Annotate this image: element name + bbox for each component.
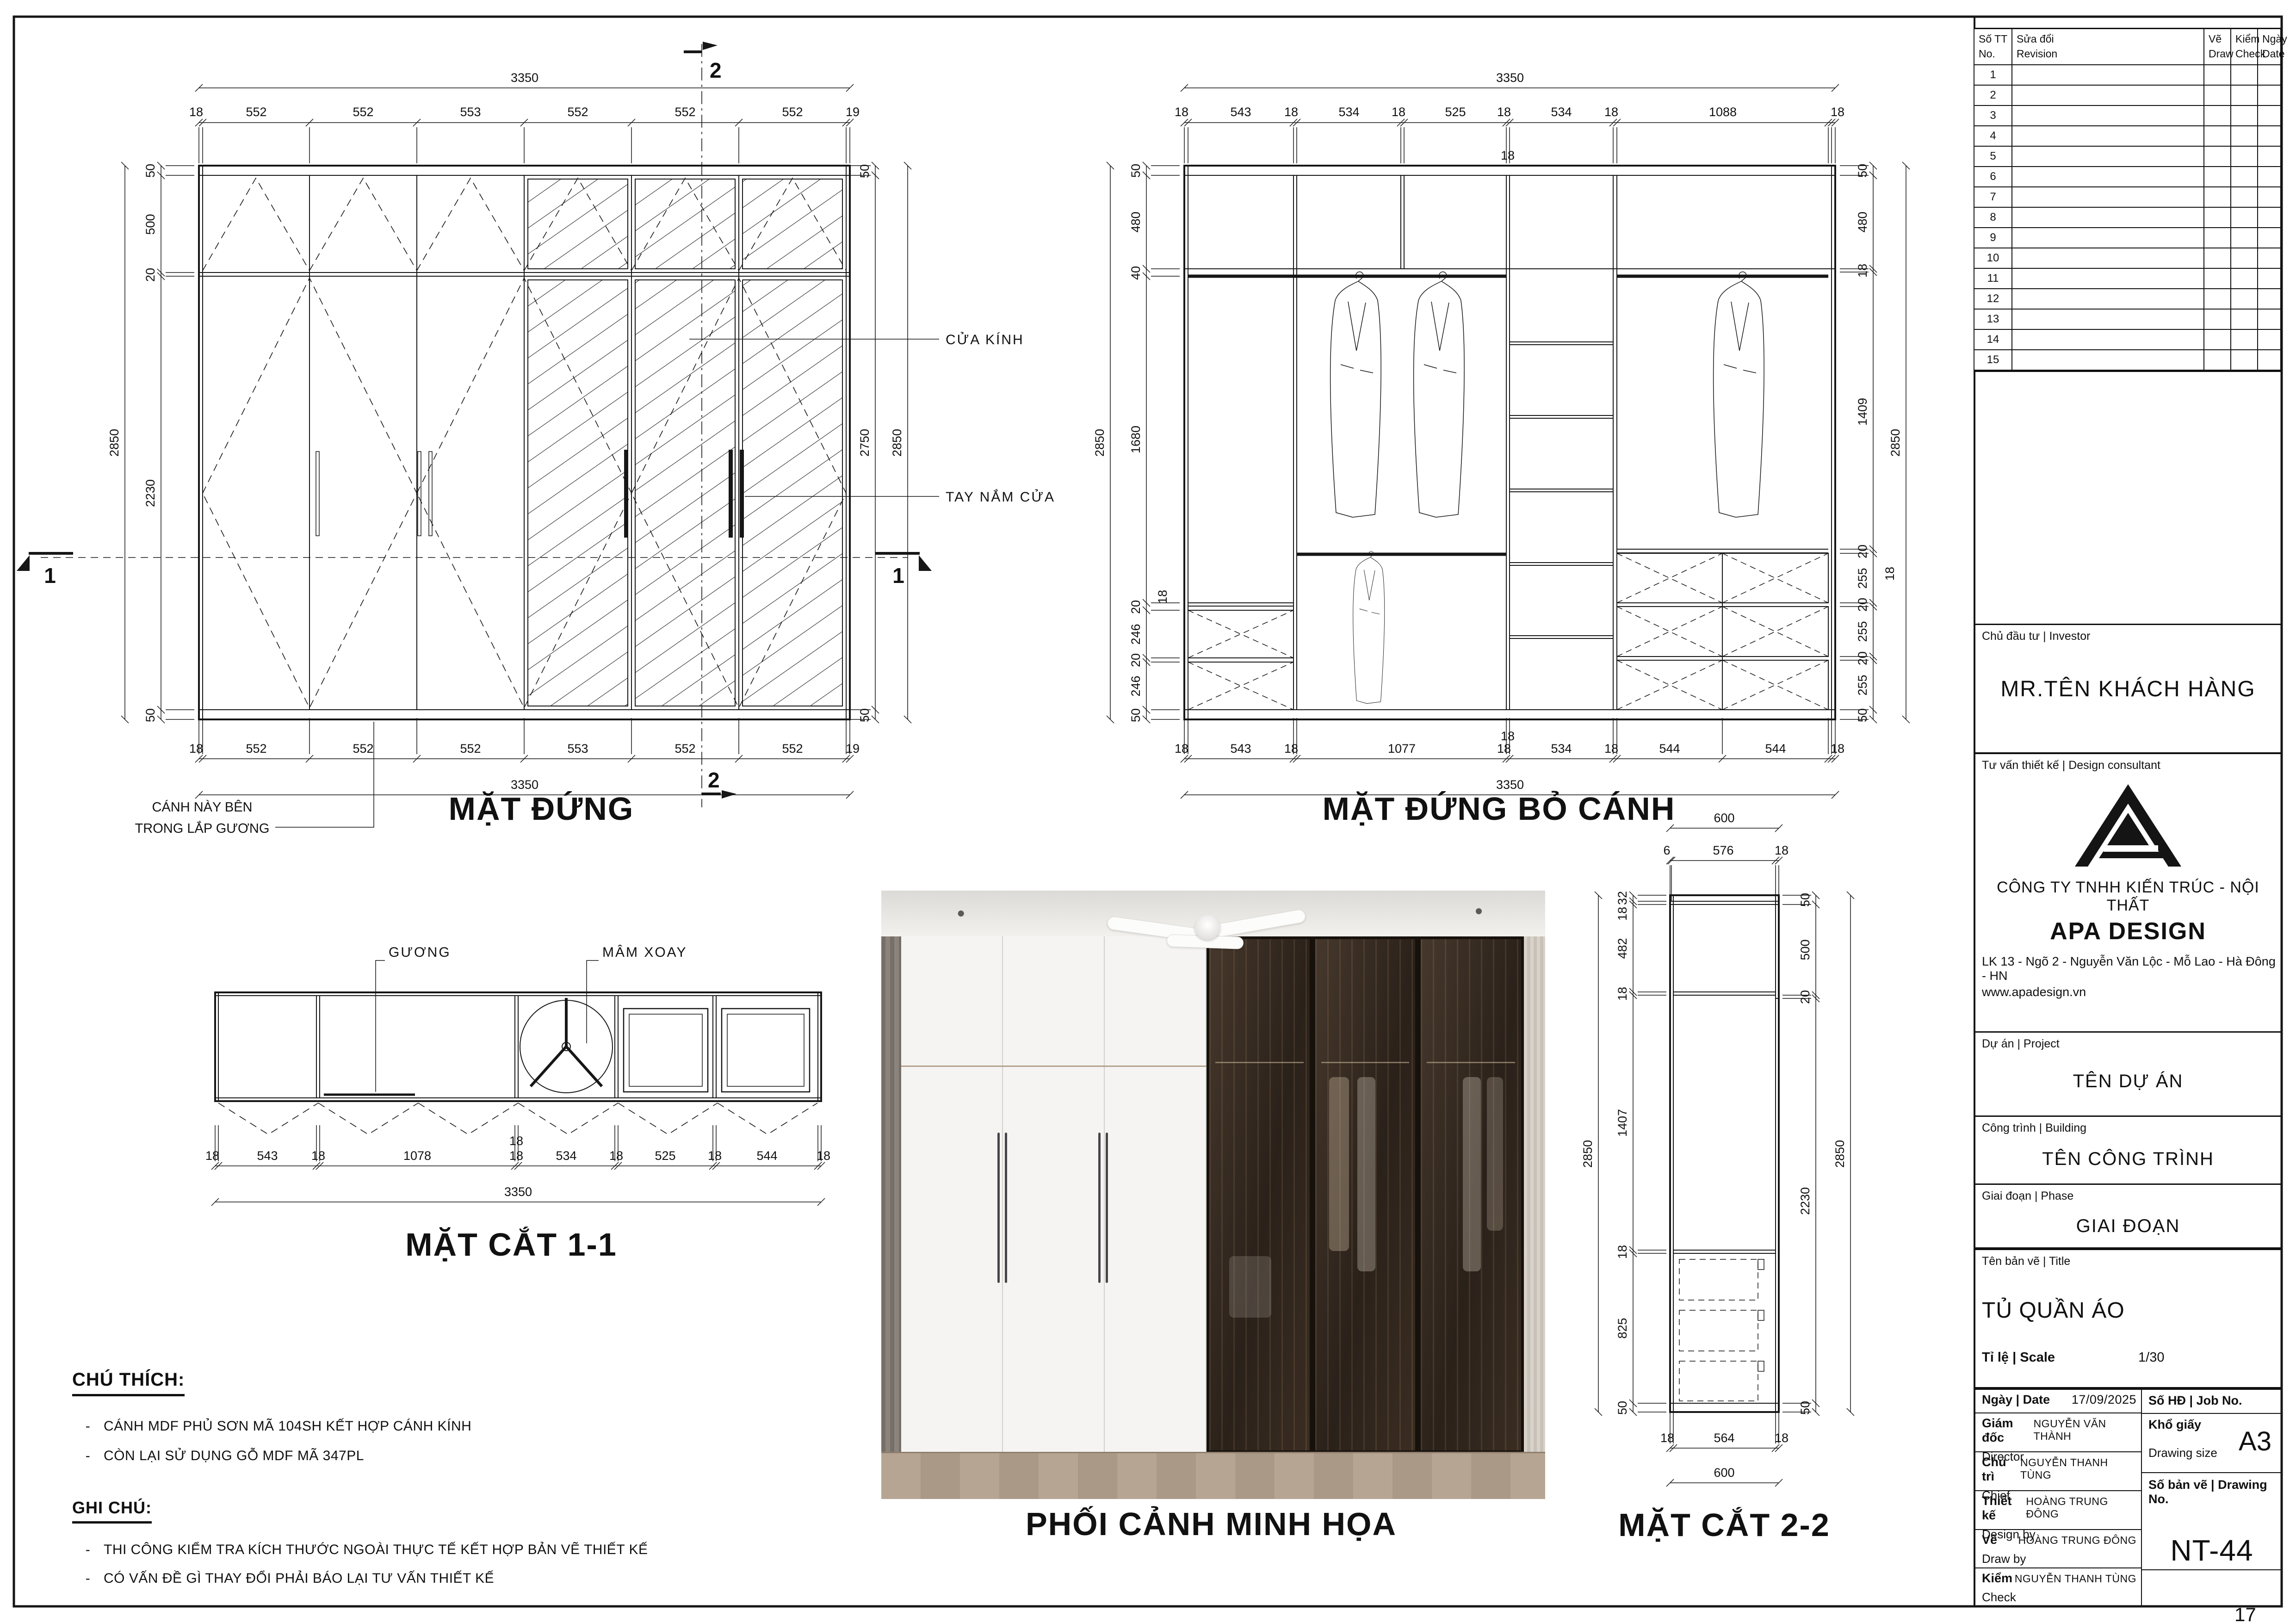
consultant-label: Tư vấn thiết kế | Design consultant xyxy=(1974,754,2282,772)
dim: 534 xyxy=(1551,105,1572,119)
dim: 255 xyxy=(1856,675,1869,695)
paper-size-value: A3 xyxy=(2239,1426,2271,1457)
dim: 552 xyxy=(246,742,266,756)
phase-label: Giai đoạn | Phase xyxy=(1974,1185,2282,1203)
dim: 552 xyxy=(782,742,803,756)
dim: 2850 xyxy=(107,429,121,457)
dim: 500 xyxy=(1798,939,1812,960)
hanging-clothes xyxy=(1487,1077,1503,1231)
dim: 18 xyxy=(1604,105,1618,119)
dim: 255 xyxy=(1856,621,1869,642)
dim: 18 xyxy=(1831,742,1844,756)
dim: 2850 xyxy=(1888,429,1902,457)
legend-item: - CÁNH MDF PHỦ SƠN MÃ 104SH KẾT HỢP CÁNH… xyxy=(72,1419,951,1434)
col-draw-vi: Vẽ xyxy=(2209,31,2228,46)
bullet: - xyxy=(72,1571,104,1586)
company-website: www.apadesign.vn xyxy=(1974,983,2282,999)
title-block: Số TTNo. Sửa đổiRevision VẽDraw KiểmChec… xyxy=(1974,17,2282,1606)
dim: 20 xyxy=(143,268,157,282)
dim: 543 xyxy=(1230,742,1251,756)
dim: 18 xyxy=(1392,105,1405,119)
drawing-title-label: Tên bản vẽ | Title xyxy=(1974,1250,2282,1268)
dim: 18 xyxy=(1497,105,1511,119)
mirror-label: GƯƠNG xyxy=(389,945,451,960)
dim: 18 xyxy=(1660,1431,1674,1445)
wall-slat-strip xyxy=(1524,936,1545,1454)
project-name: TÊN DỰ ÁN xyxy=(1974,1071,2282,1092)
glass-door-handle xyxy=(624,450,628,538)
hanging-clothes xyxy=(1329,1077,1349,1251)
dim: 553 xyxy=(567,742,588,756)
revision-row: 3 xyxy=(1974,106,2280,126)
dim: 19 xyxy=(846,105,860,119)
wood-trim-line xyxy=(901,1065,1207,1067)
checker-name: NGUYỄN THANH TÙNG xyxy=(2015,1573,2136,1585)
building-section: Công trình | Building TÊN CÔNG TRÌNH xyxy=(1974,1117,2282,1185)
dim: 19 xyxy=(846,742,860,756)
col-date-en: Date xyxy=(2262,46,2278,61)
dim: 18 xyxy=(1615,987,1629,1001)
dim: 20 xyxy=(1856,545,1869,558)
dim: 50 xyxy=(1856,164,1869,178)
designer-label-vi: Thiết kế xyxy=(1982,1494,2026,1523)
photo-title: PHỐI CẢNH MINH HỌA xyxy=(1026,1505,1397,1542)
door-handle xyxy=(316,452,319,536)
revision-row: 14 xyxy=(1974,330,2280,350)
phase-section: Giai đoạn | Phase GIAI ĐOẠN xyxy=(1974,1185,2282,1250)
date-label: Ngày | Date xyxy=(1982,1393,2050,1407)
investor-name: MR.TÊN KHÁCH HÀNG xyxy=(1974,676,2282,702)
dim: 50 xyxy=(1798,1401,1812,1415)
dim: 552 xyxy=(353,105,373,119)
dim: 18 xyxy=(205,1149,219,1163)
section-marker: 1 xyxy=(892,564,904,588)
dim: 50 xyxy=(1615,1401,1629,1415)
dim: 2850 xyxy=(1833,1140,1847,1168)
mirror-note: CÁNH NÀY BÊN xyxy=(152,799,252,815)
dim: 552 xyxy=(675,105,695,119)
dim: 50 xyxy=(1798,893,1812,907)
wood-floor xyxy=(881,1452,1545,1499)
revision-row: 6 xyxy=(1974,167,2280,187)
scale-label: Tỉ lệ | Scale xyxy=(1982,1350,2055,1365)
drawing-title: TỦ QUẦN ÁO xyxy=(1974,1268,2282,1323)
dim: 20 xyxy=(1129,653,1143,667)
dim: 3350 xyxy=(511,778,538,792)
dim: 552 xyxy=(246,105,266,119)
glass-door-handle xyxy=(729,450,733,538)
drawing-no-value: NT-44 xyxy=(2142,1533,2282,1567)
notes-block: CHÚ THÍCH: - CÁNH MDF PHỦ SƠN MÃ 104SH K… xyxy=(72,1369,951,1586)
dim: 1680 xyxy=(1129,426,1143,453)
fan-blade xyxy=(1213,909,1306,938)
open-elevation-title: MẶT ĐỨNG BỎ CÁNH xyxy=(1323,790,1676,827)
dim: 246 xyxy=(1129,624,1143,644)
dim: 18 xyxy=(1175,105,1188,119)
dim: 543 xyxy=(1230,105,1251,119)
mirror-note: TRONG LẮP GƯƠNG xyxy=(135,820,270,836)
building-name: TÊN CÔNG TRÌNH xyxy=(1974,1149,2282,1170)
dim: 18 xyxy=(1883,567,1897,581)
remarks-title: GHI CHÚ: xyxy=(72,1498,152,1524)
page-number: 17 xyxy=(2234,1604,2256,1623)
section-marker: 2 xyxy=(708,768,720,792)
dim: 18 xyxy=(1501,729,1515,743)
glass-door-handle xyxy=(740,450,744,538)
dim: 2850 xyxy=(1093,429,1107,457)
col-draw-en: Draw xyxy=(2209,46,2228,61)
dim: 1077 xyxy=(1388,742,1416,756)
dim: 3350 xyxy=(1496,778,1524,792)
dim: 18 xyxy=(1497,742,1511,756)
bullet: - xyxy=(72,1542,104,1558)
hanging-clothes xyxy=(1357,1077,1375,1271)
drawing-title-section: Tên bản vẽ | Title TỦ QUẦN ÁO Tỉ lệ | Sc… xyxy=(1974,1250,2282,1390)
drafter-label-en: Draw by xyxy=(1982,1552,2136,1566)
open-elevation-drawing: 3350 18 543 18 534 18 525 18 534 18 1088… xyxy=(1093,71,1910,827)
dim: 552 xyxy=(675,742,695,756)
dim: 564 xyxy=(1714,1431,1734,1445)
dim: 552 xyxy=(353,742,373,756)
designer-row: Thiết kếHOÀNG TRUNG ĐÔNG Design by xyxy=(1974,1491,2141,1530)
col-rev-vi: Sửa đổi xyxy=(2017,31,2202,46)
dim: 2230 xyxy=(143,479,157,507)
dim: 825 xyxy=(1615,1318,1629,1338)
company-name-line2: APA DESIGN xyxy=(1974,917,2282,945)
smoked-glass-doors xyxy=(1207,936,1524,1454)
col-date-vi: Ngày xyxy=(2262,31,2278,46)
dim: 600 xyxy=(1714,1466,1734,1480)
dim: 525 xyxy=(655,1149,675,1163)
remark-text: THI CÔNG KIỂM TRA KÍCH THƯỚC NGOÀI THỰC … xyxy=(104,1542,648,1558)
remark-text: CÓ VẤN ĐỀ GÌ THAY ĐỔI PHẢI BÁO LẠI TƯ VẤ… xyxy=(104,1571,494,1586)
dim: 50 xyxy=(1129,708,1143,722)
drafter-row: VẽHOÀNG TRUNG ĐÔNG Draw by xyxy=(1974,1530,2141,1568)
dim: 32 xyxy=(1615,891,1629,905)
dim: 3350 xyxy=(511,71,538,85)
glass-door-panel xyxy=(1207,936,1312,1454)
dim: 18 xyxy=(609,1149,623,1163)
hanging-suit xyxy=(1714,272,1764,517)
col-no-vi: Số TT xyxy=(1979,31,2010,46)
date-row: Ngày | Date17/09/2025 xyxy=(1974,1390,2141,1413)
paper-size-row: Khổ giấy Drawing size A3 xyxy=(2142,1414,2282,1473)
dim: 552 xyxy=(567,105,588,119)
hanging-rod xyxy=(1321,1062,1410,1063)
legend-text: CÒN LẠI SỬ DỤNG GỖ MDF MÃ 347PL xyxy=(104,1448,364,1464)
section-1-1-drawing: GƯƠNG MÂM XOAY 18 543 18 1078 18 534 18 … xyxy=(205,945,830,1263)
door-handle-label: TAY NẮM CỬA xyxy=(946,489,1055,505)
hanging-suit xyxy=(1331,272,1381,517)
job-no-label: Số HĐ | Job No. xyxy=(2142,1390,2282,1414)
dim: 3350 xyxy=(1496,71,1524,85)
glass-door-label: CỬA KÍNH xyxy=(946,332,1024,347)
dim: 20 xyxy=(1798,990,1812,1004)
dim: 1078 xyxy=(403,1149,431,1163)
dim: 552 xyxy=(782,105,803,119)
dim: 18 xyxy=(1156,590,1170,604)
section-2-2-title: MẶT CẮT 2-2 xyxy=(1618,1506,1830,1543)
white-door-panel xyxy=(1105,936,1207,1454)
chief-label-vi: Chủ trì xyxy=(1982,1455,2020,1484)
legend-title: CHÚ THÍCH: xyxy=(72,1369,185,1396)
revision-row: 7 xyxy=(1974,187,2280,208)
revision-row: 11 xyxy=(1974,269,2280,289)
revision-row: 8 xyxy=(1974,208,2280,228)
checker-label-en: Check xyxy=(1982,1590,2136,1604)
dim: 2750 xyxy=(858,429,872,457)
chief-row: Chủ trìNGUYỄN THANH TÙNG Chief xyxy=(1974,1452,2141,1491)
dim: 20 xyxy=(1129,600,1143,614)
dim: 255 xyxy=(1856,568,1869,588)
dim: 18 xyxy=(1775,843,1789,857)
project-label: Dự án | Project xyxy=(1974,1033,2282,1051)
dim: 2850 xyxy=(890,429,904,457)
render-photo xyxy=(881,891,1545,1499)
chief-name: NGUYỄN THANH TÙNG xyxy=(2020,1456,2136,1481)
dim: 480 xyxy=(1129,211,1143,232)
drafter-name: HOÀNG TRUNG ĐÔNG xyxy=(2018,1534,2136,1547)
dim: 18 xyxy=(1284,105,1298,119)
dim: 544 xyxy=(1765,742,1786,756)
revision-row: 2 xyxy=(1974,86,2280,106)
dim: 3350 xyxy=(504,1185,532,1199)
remark-item: - CÓ VẤN ĐỀ GÌ THAY ĐỔI PHẢI BÁO LẠI TƯ … xyxy=(72,1571,951,1586)
dim: 534 xyxy=(1338,105,1359,119)
dim: 482 xyxy=(1615,938,1629,959)
dim: 543 xyxy=(257,1149,278,1163)
section-marker: 1 xyxy=(44,564,56,588)
dim: 18 xyxy=(1175,742,1188,756)
dim: 18 xyxy=(189,105,203,119)
revision-row: 10 xyxy=(1974,248,2280,269)
dim: 18 xyxy=(1604,742,1618,756)
revision-row: 13 xyxy=(1974,310,2280,330)
door-handle xyxy=(1106,1133,1108,1282)
company-name-line1: CÔNG TY TNHH KIẾN TRÚC - NỘI THẤT xyxy=(1974,879,2282,915)
dim: 18 xyxy=(1615,907,1629,921)
dim: 500 xyxy=(143,214,157,235)
dim: 534 xyxy=(1551,742,1572,756)
dim: 1088 xyxy=(1709,105,1737,119)
shelf-items xyxy=(1229,1256,1271,1318)
dim: 600 xyxy=(1714,811,1734,825)
drafter-label-vi: Vẽ xyxy=(1982,1533,1997,1547)
door-handle xyxy=(1098,1133,1101,1282)
col-check-en: Check xyxy=(2235,46,2255,61)
project-section: Dự án | Project TÊN DỰ ÁN xyxy=(1974,1033,2282,1117)
dim: 18 xyxy=(311,1149,325,1163)
section-2-2-drawing: 600 6 576 18 32 18 482 18 1407 18 825 50… xyxy=(1581,811,1854,1543)
hanging-clothes xyxy=(1463,1077,1481,1271)
col-check-vi: Kiểm xyxy=(2235,31,2255,46)
building-label: Công trình | Building xyxy=(1974,1117,2282,1135)
dim: 50 xyxy=(143,164,157,178)
dim: 20 xyxy=(1856,598,1869,612)
dim: 480 xyxy=(1856,211,1869,232)
revision-row: 4 xyxy=(1974,126,2280,147)
dim: 534 xyxy=(556,1149,576,1163)
dim: 6 xyxy=(1663,843,1670,857)
hanging-rod xyxy=(1215,1062,1304,1063)
consultant-section: Tư vấn thiết kế | Design consultant CÔNG… xyxy=(1974,754,2282,1033)
dim: 525 xyxy=(1445,105,1466,119)
drawing-no-label: Số bản vẽ | Drawing No. xyxy=(2142,1473,2282,1506)
apa-logo xyxy=(2075,784,2181,867)
front-elevation-title: MẶT ĐỨNG xyxy=(449,791,634,827)
dim: 2850 xyxy=(1581,1140,1595,1168)
dim: 18 xyxy=(509,1149,523,1163)
checker-label-vi: Kiểm xyxy=(1982,1571,2012,1586)
front-elevation-drawing: 2 2 1 1 3350 18 552 552 553 552 552 552 … xyxy=(17,42,1055,836)
bullet: - xyxy=(72,1419,104,1434)
dim: 18 xyxy=(189,742,203,756)
revision-row: 12 xyxy=(1974,289,2280,310)
drawing-no-row: Số bản vẽ | Drawing No. NT-44 xyxy=(2142,1473,2282,1570)
company-address: LK 13 - Ngõ 2 - Nguyễn Văn Lộc - Mỗ Lao … xyxy=(1974,945,2282,983)
dim: 40 xyxy=(1129,266,1143,280)
dim: 544 xyxy=(756,1149,777,1163)
designer-name: HOÀNG TRUNG ĐÔNG xyxy=(2026,1495,2136,1520)
hanging-rod xyxy=(1427,1062,1515,1063)
dim: 246 xyxy=(1129,675,1143,696)
scale-value: 1/30 xyxy=(2138,1350,2164,1365)
director-row: Giám đốcNGUYỄN VĂN THÀNH Director xyxy=(1974,1413,2141,1452)
phase-name: GIAI ĐOẠN xyxy=(1974,1216,2282,1237)
dim: 2230 xyxy=(1798,1187,1812,1215)
director-label-vi: Giám đốc xyxy=(1982,1416,2034,1445)
dim: 20 xyxy=(1856,651,1869,665)
door-handle xyxy=(1005,1133,1007,1282)
revision-row: 9 xyxy=(1974,228,2280,248)
revision-table-header: Số TTNo. Sửa đổiRevision VẽDraw KiểmChec… xyxy=(1974,29,2280,65)
col-rev-en: Revision xyxy=(2017,46,2202,61)
glass-door-panel xyxy=(1418,936,1524,1454)
dim: 50 xyxy=(1856,708,1869,722)
ceiling-fan xyxy=(1107,893,1306,966)
dim: 1407 xyxy=(1615,1109,1629,1137)
dim: 18 xyxy=(1284,742,1298,756)
investor-label: Chủ đầu tư | Investor xyxy=(1974,625,2282,643)
dim: 50 xyxy=(858,708,872,722)
dim: 50 xyxy=(143,708,157,722)
dim: 50 xyxy=(1129,164,1143,178)
dim: 18 xyxy=(509,1134,523,1148)
investor-section: Chủ đầu tư | Investor MR.TÊN KHÁCH HÀNG xyxy=(1974,624,2282,754)
door-handle xyxy=(418,452,421,536)
director-name: NGUYỄN VĂN THÀNH xyxy=(2034,1418,2136,1443)
glass-door-panel xyxy=(1312,936,1418,1454)
dim: 18 xyxy=(1501,149,1515,162)
legend-item: - CÒN LẠI SỬ DỤNG GỖ MDF MÃ 347PL xyxy=(72,1448,951,1464)
tray-label: MÂM XOAY xyxy=(602,945,687,960)
dim: 18 xyxy=(1775,1431,1789,1445)
drawing-sheet: 2 2 1 1 3350 18 552 552 553 552 552 552 … xyxy=(0,0,2296,1623)
revision-row: 15 xyxy=(1974,350,2280,371)
white-door-panel xyxy=(1003,936,1105,1454)
dim: 1409 xyxy=(1856,398,1869,426)
dim: 552 xyxy=(460,742,481,756)
hanging-suit xyxy=(1353,551,1385,704)
hanging-suit xyxy=(1414,272,1464,517)
bullet: - xyxy=(72,1448,104,1464)
dim: 544 xyxy=(1659,742,1680,756)
checker-row: KiểmNGUYỄN THANH TÙNG Check xyxy=(1974,1568,2141,1606)
dim: 18 xyxy=(1856,264,1869,278)
dim: 576 xyxy=(1713,843,1733,857)
signature-section: Ngày | Date17/09/2025 Giám đốcNGUYỄN VĂN… xyxy=(1974,1390,2282,1606)
dim: 18 xyxy=(1615,1245,1629,1259)
remark-item: - THI CÔNG KIỂM TRA KÍCH THƯỚC NGOÀI THỰ… xyxy=(72,1542,951,1558)
revision-row: 1 xyxy=(1974,65,2280,86)
revision-row: 5 xyxy=(1974,147,2280,167)
dim: 50 xyxy=(858,164,872,178)
legend-text: CÁNH MDF PHỦ SƠN MÃ 104SH KẾT HỢP CÁNH K… xyxy=(104,1419,471,1434)
dim: 18 xyxy=(708,1149,722,1163)
date-value: 17/09/2025 xyxy=(2072,1393,2136,1407)
dim: 553 xyxy=(460,105,481,119)
dim: 18 xyxy=(1831,105,1844,119)
fan-hub xyxy=(1194,915,1220,940)
door-handle xyxy=(997,1133,1000,1282)
col-no-en: No. xyxy=(1979,46,2010,61)
section-1-1-title: MẶT CẮT 1-1 xyxy=(405,1226,617,1263)
section-marker: 2 xyxy=(710,58,722,82)
dim: 18 xyxy=(817,1149,830,1163)
revision-table: Số TTNo. Sửa đổiRevision VẽDraw KiểmChec… xyxy=(1974,28,2282,372)
